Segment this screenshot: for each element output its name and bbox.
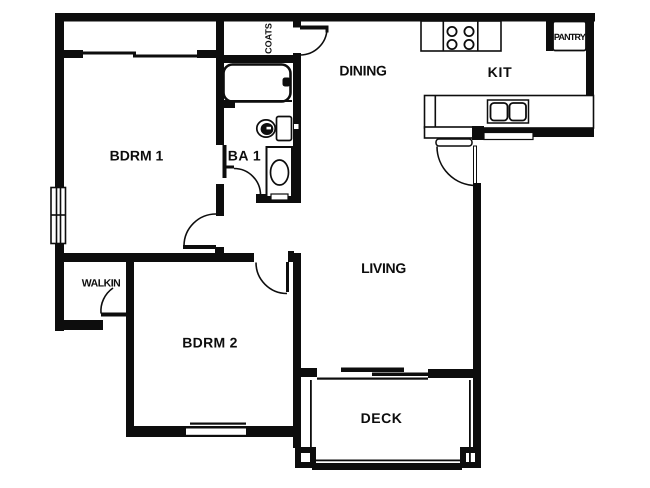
svg-text:COATS: COATS — [264, 23, 274, 54]
svg-text:KIT: KIT — [488, 64, 513, 80]
svg-text:BDRM 2: BDRM 2 — [182, 335, 237, 351]
svg-text:WALKIN: WALKIN — [82, 278, 120, 290]
svg-text:LIVING: LIVING — [361, 260, 406, 276]
svg-text:DECK: DECK — [361, 410, 403, 426]
svg-text:DINING: DINING — [339, 63, 387, 79]
svg-text:BDRM 1: BDRM 1 — [110, 148, 164, 164]
svg-text:BA 1: BA 1 — [228, 148, 261, 164]
svg-text:PANTRY: PANTRY — [554, 32, 586, 42]
